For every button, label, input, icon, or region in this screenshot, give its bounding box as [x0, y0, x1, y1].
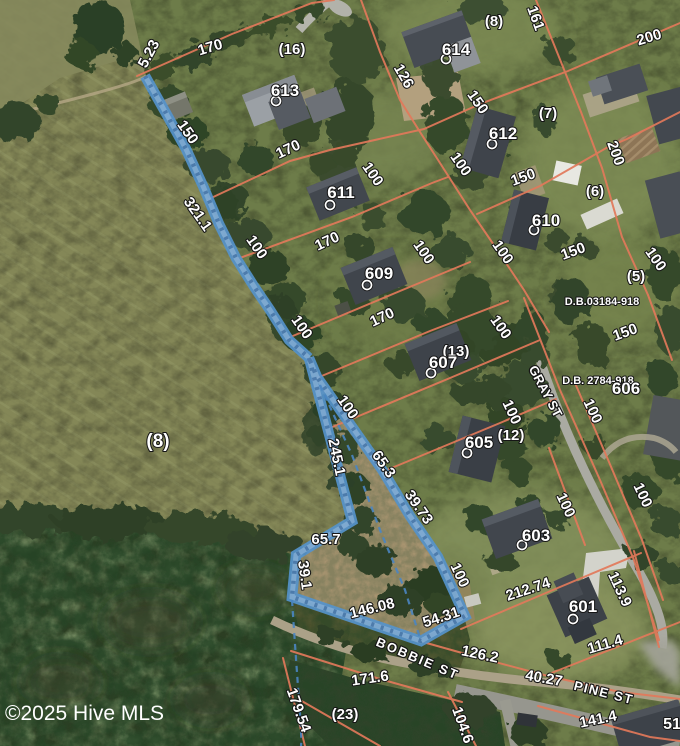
- svg-text:605: 605: [465, 433, 493, 452]
- svg-text:611: 611: [327, 183, 354, 202]
- svg-text:(5): (5): [627, 268, 645, 285]
- svg-text:614: 614: [442, 40, 471, 59]
- svg-text:603: 603: [522, 526, 550, 545]
- svg-text:(16): (16): [279, 41, 306, 58]
- svg-text:©2025 Hive MLS: ©2025 Hive MLS: [5, 702, 164, 725]
- svg-text:(8): (8): [485, 13, 503, 30]
- svg-text:609: 609: [365, 264, 393, 283]
- svg-text:65.7: 65.7: [311, 531, 340, 548]
- svg-text:610: 610: [532, 211, 560, 230]
- svg-text:(8): (8): [146, 431, 169, 452]
- svg-text:D.B.03184-918: D.B.03184-918: [565, 296, 640, 308]
- svg-text:51: 51: [663, 716, 680, 733]
- svg-text:612: 612: [489, 124, 517, 143]
- svg-text:(7): (7): [539, 105, 557, 122]
- svg-text:613: 613: [271, 81, 299, 100]
- svg-text:(23): (23): [332, 706, 359, 723]
- svg-text:(6): (6): [586, 183, 604, 200]
- svg-text:(12): (12): [498, 427, 525, 444]
- svg-text:607: 607: [429, 353, 457, 372]
- svg-text:601: 601: [569, 597, 597, 616]
- svg-text:606: 606: [612, 379, 640, 398]
